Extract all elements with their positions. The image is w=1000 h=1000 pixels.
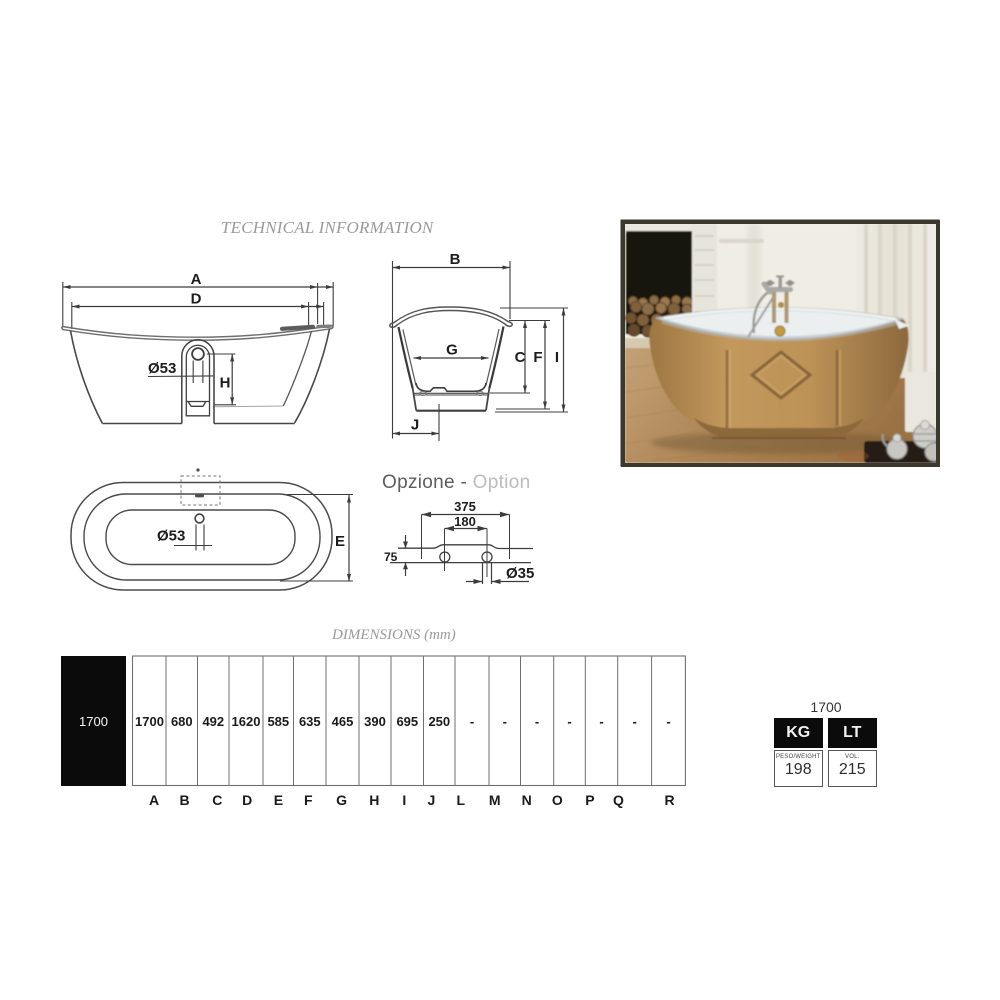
svg-text:375: 375 bbox=[454, 499, 476, 514]
svg-text:L: L bbox=[457, 792, 466, 808]
svg-text:A: A bbox=[149, 792, 159, 808]
svg-text:492: 492 bbox=[202, 714, 224, 729]
svg-text:465: 465 bbox=[332, 714, 354, 729]
svg-text:P: P bbox=[585, 792, 594, 808]
svg-text:-: - bbox=[470, 714, 474, 729]
svg-text:695: 695 bbox=[396, 714, 418, 729]
svg-text:E: E bbox=[335, 533, 345, 550]
svg-text:Q: Q bbox=[613, 792, 624, 808]
svg-text:O: O bbox=[552, 792, 563, 808]
svg-text:H: H bbox=[220, 375, 231, 392]
svg-text:250: 250 bbox=[428, 714, 450, 729]
svg-text:-: - bbox=[535, 714, 539, 729]
svg-text:G: G bbox=[336, 792, 347, 808]
svg-text:J: J bbox=[411, 417, 419, 434]
svg-text:C: C bbox=[515, 349, 526, 366]
svg-text:-: - bbox=[666, 714, 670, 729]
svg-text:680: 680 bbox=[171, 714, 193, 729]
svg-text:J: J bbox=[428, 792, 436, 808]
svg-text:C: C bbox=[212, 792, 222, 808]
svg-text:G: G bbox=[446, 342, 458, 359]
svg-text:1620: 1620 bbox=[232, 714, 261, 729]
svg-text:B: B bbox=[450, 251, 461, 268]
svg-text:390: 390 bbox=[364, 714, 386, 729]
svg-text:635: 635 bbox=[299, 714, 321, 729]
svg-text:I: I bbox=[555, 349, 559, 366]
svg-text:I: I bbox=[402, 792, 406, 808]
svg-text:-: - bbox=[599, 714, 603, 729]
svg-text:585: 585 bbox=[267, 714, 289, 729]
svg-text:H: H bbox=[369, 792, 379, 808]
svg-text:M: M bbox=[489, 792, 501, 808]
svg-text:Ø35: Ø35 bbox=[506, 565, 534, 582]
svg-text:Ø53: Ø53 bbox=[157, 528, 185, 545]
svg-text:F: F bbox=[304, 792, 313, 808]
svg-text:180: 180 bbox=[454, 514, 476, 529]
svg-text:1700: 1700 bbox=[135, 714, 164, 729]
svg-text:F: F bbox=[533, 349, 542, 366]
svg-text:-: - bbox=[633, 714, 637, 729]
svg-text:D: D bbox=[242, 792, 252, 808]
svg-text:-: - bbox=[503, 714, 507, 729]
svg-text:N: N bbox=[522, 792, 532, 808]
svg-text:75: 75 bbox=[384, 550, 398, 564]
svg-text:E: E bbox=[274, 792, 283, 808]
svg-text:D: D bbox=[191, 291, 202, 308]
svg-text:B: B bbox=[180, 792, 190, 808]
svg-text:R: R bbox=[664, 792, 674, 808]
svg-text:-: - bbox=[567, 714, 571, 729]
svg-text:A: A bbox=[191, 271, 202, 288]
svg-text:Ø53: Ø53 bbox=[148, 360, 176, 377]
